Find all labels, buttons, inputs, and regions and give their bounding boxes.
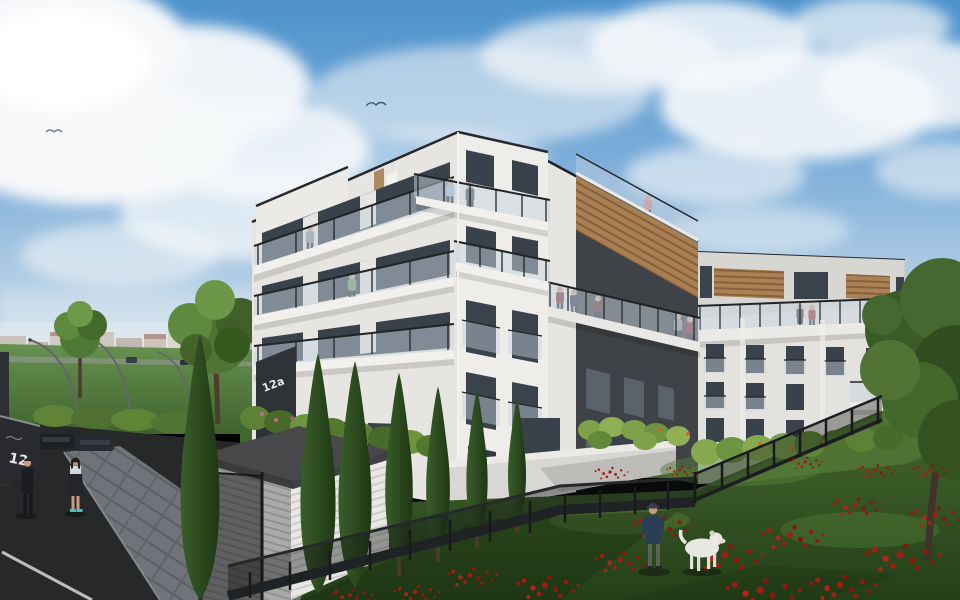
parked-car	[76, 437, 114, 451]
parked-car	[38, 434, 74, 449]
architectural-rendering: 12a	[0, 0, 960, 600]
render-canvas: 12a	[0, 0, 960, 600]
dog-ear	[709, 530, 714, 535]
